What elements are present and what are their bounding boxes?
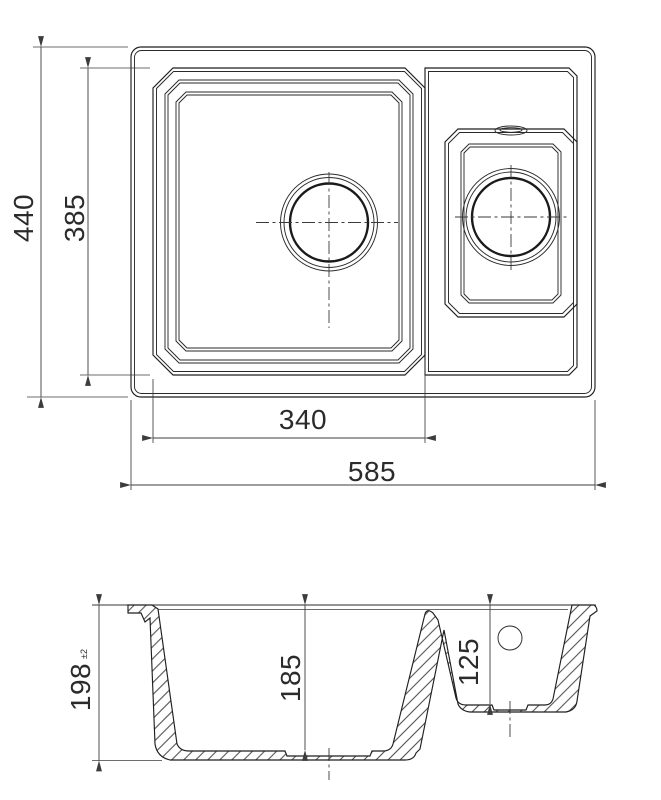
dim-overall-depth-label: 440: [8, 194, 39, 242]
tap-hole: [498, 626, 522, 650]
dimension-inner-depth: 385: [59, 68, 150, 375]
sink-technical-drawing: 440 385 340 585: [0, 0, 661, 800]
section-material: [128, 605, 597, 760]
small-drain: [455, 165, 567, 273]
overflow-slot-inner: [500, 128, 522, 133]
top-view: 440 385 340 585: [8, 47, 595, 490]
dim-overall-width-label: 585: [348, 456, 396, 487]
small-bowl-assembly-inner: [429, 72, 574, 372]
dim-inner-depth-label: 385: [59, 194, 90, 242]
technical-drawing-page: 440 385 340 585: [0, 0, 661, 800]
small-bowl-assembly-outer: [425, 68, 577, 375]
dimension-main-bowl-depth: 185: [275, 605, 306, 750]
sink-outer-edge-inner: [135, 51, 592, 394]
dimension-main-bowl-width: 340: [153, 360, 425, 443]
dim-overall-height-label: 198: [65, 663, 96, 711]
dim-main-bowl-depth-label: 185: [275, 654, 306, 702]
dim-small-bowl-depth-label: 125: [453, 638, 484, 686]
dim-height-tolerance-label: ±2: [79, 649, 89, 659]
dim-main-bowl-width-label: 340: [279, 404, 327, 435]
section-view: 198 ±2 185 125: [65, 605, 597, 780]
main-drain: [256, 172, 398, 328]
sink-outer-edge: [131, 47, 595, 397]
dimension-overall-height: 198 ±2: [65, 605, 162, 761]
dimension-overall-width: 585: [131, 400, 595, 490]
dimension-small-bowl-depth: 125: [453, 605, 490, 704]
